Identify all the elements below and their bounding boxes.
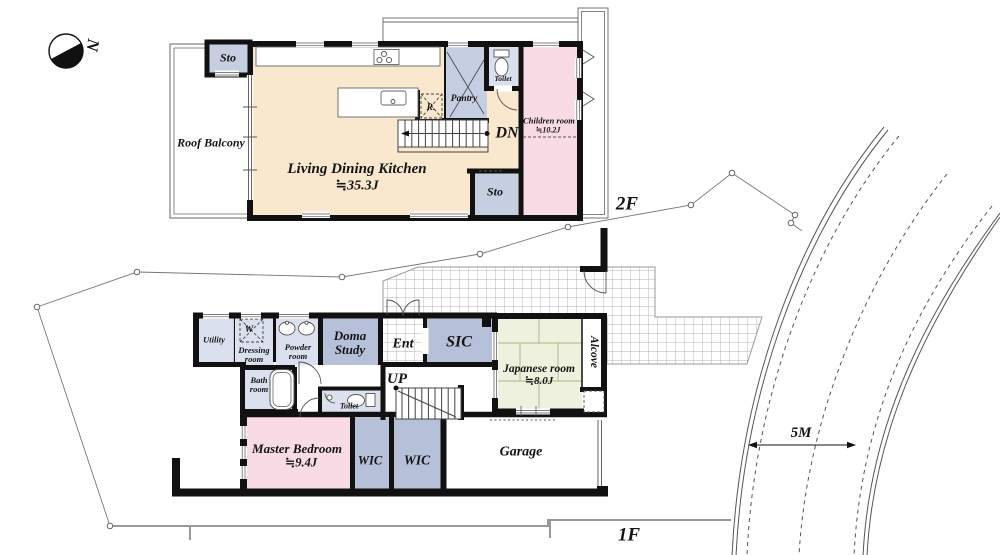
room-label-roof-balcony: Roof Balcony xyxy=(177,137,245,150)
floor1-label: 1F xyxy=(618,526,640,547)
room-label-wic-left: WIC xyxy=(358,454,382,468)
room-label-children: Children room xyxy=(523,116,575,125)
stairs-down-label: DN xyxy=(495,124,518,141)
room-size-ldk: ≒35.3J xyxy=(335,178,378,193)
stairs-up-label: UP xyxy=(387,371,407,387)
room-label-pantry: Pantry xyxy=(451,94,477,104)
floor2-plan xyxy=(170,8,608,218)
room-label-sto-top: Sto xyxy=(220,52,236,65)
floor2-label: 2F xyxy=(616,195,638,216)
room-size-master: ≒9.4J xyxy=(285,456,317,470)
floorplan-drawing xyxy=(0,0,1000,555)
road-width-label: 5M xyxy=(791,425,812,441)
room-label-sic: SIC xyxy=(446,333,472,350)
room-label-ent: Ent xyxy=(392,336,413,351)
room-label-sto-bottom: Sto xyxy=(487,186,503,199)
room-label-powder: Powder room xyxy=(276,343,320,361)
compass-icon xyxy=(49,34,83,68)
room-label-bath: Bath room xyxy=(241,376,277,394)
room-label-alcove: Alcove xyxy=(588,336,600,368)
road-width-arrow xyxy=(748,442,856,448)
washer-label: W xyxy=(245,325,253,335)
room-size-children: ≒10.2J xyxy=(536,127,561,136)
room-label-toilet-2f: Toilet xyxy=(494,75,511,83)
room-label-dressing: Dressing room xyxy=(232,346,276,364)
room-label-utility: Utility xyxy=(203,335,225,344)
room-label-ldk: Living Dining Kitchen xyxy=(287,161,426,177)
room-label-wic-right: WIC xyxy=(404,454,430,469)
room-size-japanese: ≒8.0J xyxy=(525,376,553,388)
road-curves xyxy=(732,127,1000,555)
floorplan-canvas: N Sto Roof Balcony Living Dining Kitchen… xyxy=(0,0,1000,555)
room-label-refrigerator: R. xyxy=(427,103,436,113)
room-label-master: Master Bedroom xyxy=(252,442,342,456)
room-label-toilet-1f: Toilet xyxy=(340,403,358,412)
room-label-garage: Garage xyxy=(500,444,543,459)
room-label-doma-study: Doma Study xyxy=(322,329,378,357)
room-label-japanese: Japanese room xyxy=(503,363,575,375)
